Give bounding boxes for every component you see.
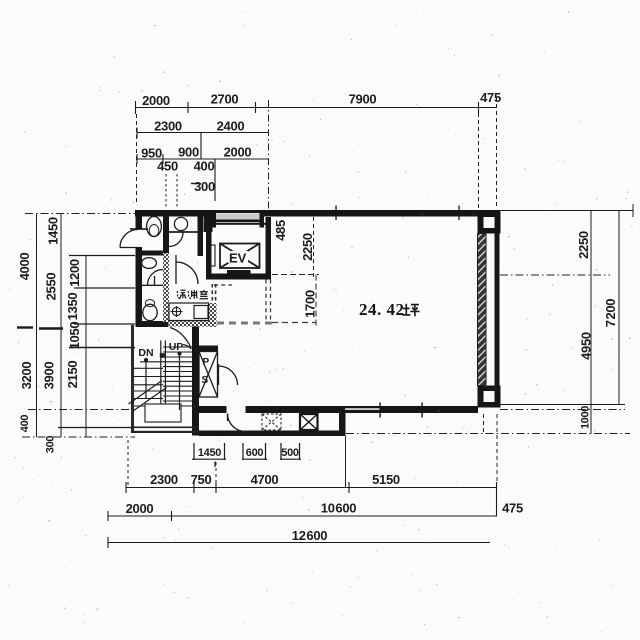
svg-text:UP: UP bbox=[169, 341, 184, 353]
svg-text:2700: 2700 bbox=[211, 92, 239, 107]
svg-text:7 200: 7 200 bbox=[603, 299, 618, 328]
svg-text:10 600: 10 600 bbox=[321, 501, 357, 516]
svg-text:900: 900 bbox=[178, 145, 199, 160]
svg-text:DN: DN bbox=[138, 347, 153, 359]
svg-text:600: 600 bbox=[246, 447, 264, 459]
svg-text:1200: 1200 bbox=[67, 259, 82, 287]
svg-text:4700: 4700 bbox=[251, 472, 279, 487]
svg-text:12 600: 12 600 bbox=[292, 528, 328, 543]
svg-text:1050: 1050 bbox=[67, 322, 82, 350]
svg-text:750: 750 bbox=[191, 472, 212, 487]
svg-text:2000: 2000 bbox=[126, 501, 154, 516]
svg-text:300: 300 bbox=[194, 179, 215, 194]
svg-text:2300: 2300 bbox=[154, 119, 182, 134]
svg-text:EV: EV bbox=[229, 251, 247, 266]
svg-text:S: S bbox=[202, 375, 209, 386]
svg-text:485: 485 bbox=[273, 220, 288, 241]
svg-text:2000: 2000 bbox=[224, 145, 252, 160]
svg-text:5150: 5150 bbox=[372, 472, 400, 487]
svg-text:3900: 3900 bbox=[41, 362, 56, 390]
svg-text:P: P bbox=[203, 357, 210, 368]
svg-text:1450: 1450 bbox=[45, 217, 60, 245]
svg-text:1450: 1450 bbox=[198, 447, 221, 459]
svg-text:7900: 7900 bbox=[349, 92, 377, 107]
svg-text:2300: 2300 bbox=[150, 472, 178, 487]
svg-text:400: 400 bbox=[194, 159, 215, 174]
svg-text:4950: 4950 bbox=[578, 332, 593, 360]
svg-text:1000: 1000 bbox=[579, 406, 591, 429]
svg-text:1700: 1700 bbox=[302, 290, 317, 318]
svg-text:450: 450 bbox=[157, 159, 178, 174]
svg-text:1350: 1350 bbox=[65, 293, 80, 321]
svg-text:475: 475 bbox=[502, 501, 523, 516]
svg-text:4000: 4000 bbox=[17, 253, 32, 281]
svg-text:2000: 2000 bbox=[142, 93, 170, 108]
svg-text:2150: 2150 bbox=[65, 361, 80, 389]
svg-text:300: 300 bbox=[44, 436, 56, 454]
svg-text:475: 475 bbox=[480, 90, 501, 105]
svg-text:400: 400 bbox=[19, 415, 31, 433]
svg-text:500: 500 bbox=[281, 447, 299, 459]
svg-text:2550: 2550 bbox=[43, 273, 58, 301]
svg-text:2400: 2400 bbox=[217, 119, 245, 134]
svg-text:2250: 2250 bbox=[576, 231, 591, 259]
svg-text:3200: 3200 bbox=[19, 362, 34, 390]
svg-text:2250: 2250 bbox=[300, 233, 315, 261]
svg-text:24. 42: 24. 42 bbox=[359, 300, 405, 319]
